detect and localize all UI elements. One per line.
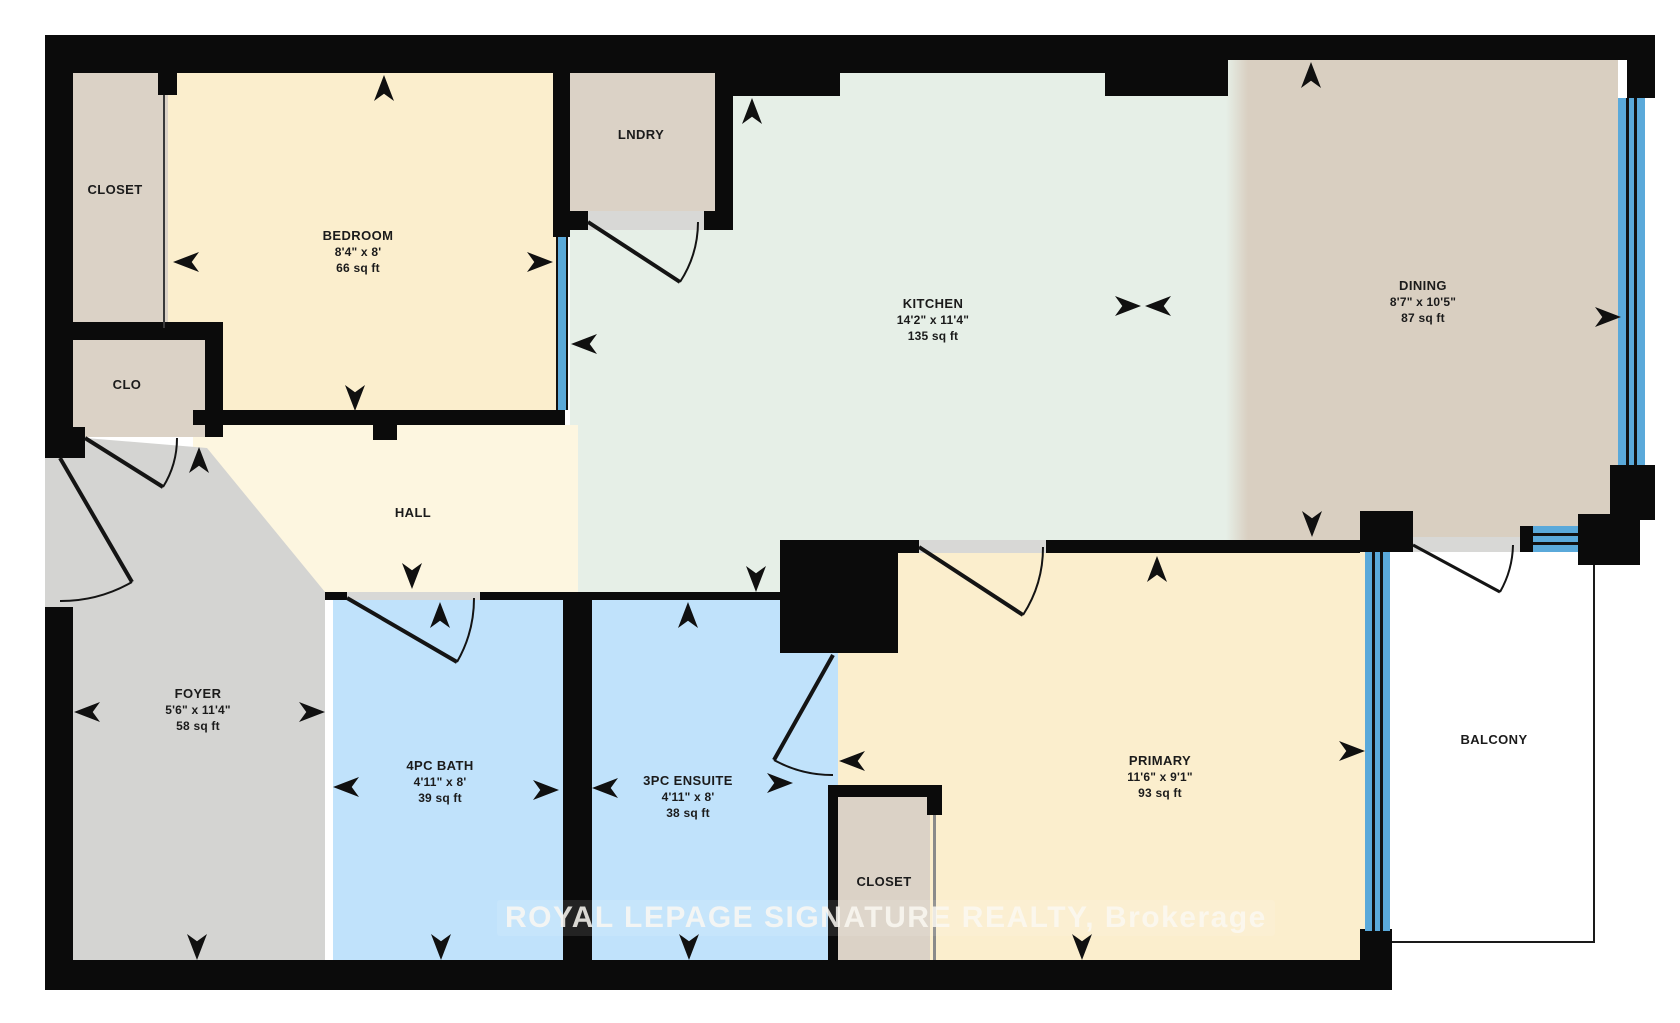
room-label-balcony: BALCONY	[1460, 732, 1527, 748]
wall-closet-primary-corner	[927, 785, 942, 815]
wall-laundry-right	[715, 73, 733, 230]
room-floor-closet-top	[73, 73, 168, 340]
room-name: BEDROOM	[323, 228, 394, 244]
wall-top	[45, 35, 1228, 73]
room-area: 93 sq ft	[1127, 785, 1193, 801]
wall-closet-clo-divider	[73, 322, 223, 340]
room-name: BALCONY	[1460, 732, 1527, 748]
room-label-dining: DINING 8'7" x 10'5" 87 sq ft	[1390, 278, 1456, 326]
wall-bath-top	[480, 592, 563, 600]
window-balcony-top	[1533, 526, 1578, 552]
wall-balcony-corner-tl	[1360, 511, 1413, 552]
window-dining	[1618, 98, 1645, 465]
room-dimensions: 8'7" x 10'5"	[1390, 294, 1456, 310]
wall-bottom	[45, 960, 1390, 990]
wall-bath-top	[325, 592, 347, 600]
room-dimensions: 11'6" x 9'1"	[1127, 769, 1193, 785]
room-label-closet-top: CLOSET	[87, 182, 142, 198]
room-name: FOYER	[165, 686, 231, 702]
kitchen-dining-blend	[1226, 60, 1248, 540]
room-dimensions: 14'2" x 11'4"	[897, 312, 969, 328]
wall-balcony-corner-bl	[1360, 929, 1392, 990]
wall-ensuite-top	[592, 592, 780, 600]
laundry-door-opening	[586, 211, 704, 230]
room-name: 4PC BATH	[406, 758, 473, 774]
room-name: PRIMARY	[1127, 753, 1193, 769]
wall-closet-primary-top	[838, 785, 927, 797]
room-name: KITCHEN	[897, 296, 969, 312]
room-name: CLOSET	[856, 874, 911, 890]
wall-top-step	[730, 73, 840, 96]
room-label-bath: 4PC BATH 4'11" x 8' 39 sq ft	[406, 758, 473, 806]
room-label-primary: PRIMARY 11'6" x 9'1" 93 sq ft	[1127, 753, 1193, 801]
floor-plan: CLOSET BEDROOM 8'4" x 8' 66 sq ft CLO LN…	[0, 0, 1680, 1023]
room-label-clo: CLO	[113, 377, 142, 393]
balcony-door-opening	[1413, 537, 1523, 552]
room-label-closet-primary: CLOSET	[856, 874, 911, 890]
room-name: DINING	[1390, 278, 1456, 294]
window-primary-balcony	[1365, 552, 1390, 931]
room-area: 39 sq ft	[406, 790, 473, 806]
laundry-door-jamb	[563, 211, 588, 230]
laundry-door-jamb	[704, 211, 733, 230]
room-dimensions: 8'4" x 8'	[323, 244, 394, 260]
room-area: 87 sq ft	[1390, 310, 1456, 326]
wall-balcony-corner-tr	[1578, 514, 1640, 565]
room-name: LNDRY	[618, 127, 664, 143]
room-dimensions: 5'6" x 11'4"	[165, 702, 231, 718]
wall-left-lower	[45, 607, 73, 990]
primary-door-opening	[919, 540, 1046, 553]
wall-top-step	[1105, 73, 1228, 96]
closet-sliding-door	[163, 95, 165, 328]
wall-primary-top	[898, 540, 919, 553]
room-label-laundry: LNDRY	[618, 127, 664, 143]
wall-primary-top	[1046, 540, 1360, 553]
closet-primary-door	[933, 815, 936, 960]
wall-bedroom-stub	[373, 425, 397, 440]
wall-bedroom-bottom	[193, 410, 565, 425]
bath-door-opening	[347, 592, 480, 600]
wall-left-upper	[45, 35, 73, 458]
room-area: 58 sq ft	[165, 718, 231, 734]
entry-opening-floor	[45, 458, 73, 607]
room-label-bedroom: BEDROOM 8'4" x 8' 66 sq ft	[323, 228, 394, 276]
room-dimensions: 4'11" x 8'	[406, 774, 473, 790]
room-name: CLO	[113, 377, 142, 393]
wall-dining-corner-tr	[1627, 35, 1655, 98]
room-name: HALL	[395, 505, 431, 521]
room-name: CLOSET	[87, 182, 142, 198]
closet-door-jamb	[158, 73, 177, 95]
wall-top-dining	[1228, 35, 1655, 60]
room-label-foyer: FOYER 5'6" x 11'4" 58 sq ft	[165, 686, 231, 734]
room-floor-laundry	[570, 73, 715, 213]
entry-door-jamb	[70, 427, 85, 458]
room-name: 3PC ENSUITE	[643, 773, 733, 789]
room-label-hall: HALL	[395, 505, 431, 521]
window-bedroom-kitchen	[556, 237, 568, 410]
room-dimensions: 4'11" x 8'	[643, 789, 733, 805]
brokerage-watermark: ROYAL LEPAGE SIGNATURE REALTY, Brokerage	[497, 900, 1275, 936]
balcony-window-cap	[1520, 526, 1533, 552]
room-label-kitchen: KITCHEN 14'2" x 11'4" 135 sq ft	[897, 296, 969, 344]
wall-center-column	[780, 540, 898, 653]
room-area: 135 sq ft	[897, 328, 969, 344]
room-area: 66 sq ft	[323, 260, 394, 276]
wall-dining-corner-br	[1610, 465, 1655, 520]
room-label-ensuite: 3PC ENSUITE 4'11" x 8' 38 sq ft	[643, 773, 733, 821]
room-area: 38 sq ft	[643, 805, 733, 821]
